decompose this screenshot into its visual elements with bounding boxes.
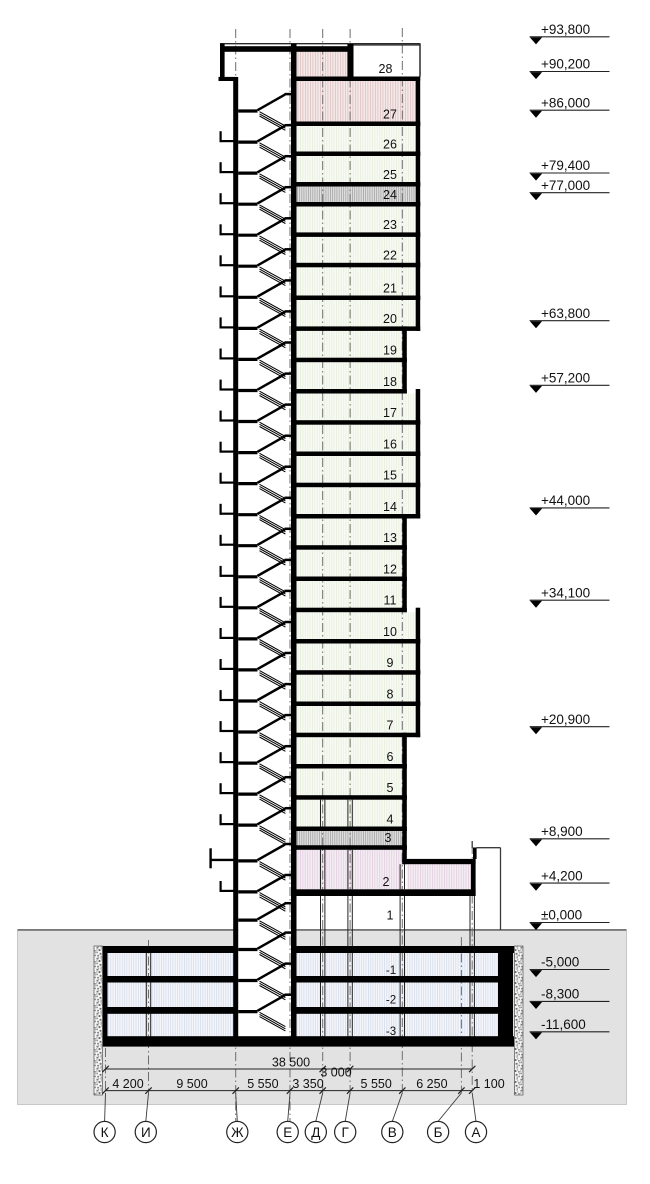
svg-text:6: 6 bbox=[387, 750, 394, 764]
svg-text:-3: -3 bbox=[386, 1026, 396, 1038]
svg-text:21: 21 bbox=[383, 281, 397, 295]
svg-text:10: 10 bbox=[383, 625, 397, 639]
svg-text:12: 12 bbox=[383, 562, 397, 576]
svg-text:9 500: 9 500 bbox=[176, 1077, 207, 1091]
svg-text:38 500: 38 500 bbox=[272, 1056, 310, 1070]
svg-text:2: 2 bbox=[383, 875, 390, 889]
svg-text:4 200: 4 200 bbox=[112, 1077, 143, 1091]
svg-text:7: 7 bbox=[387, 719, 394, 733]
svg-text:5: 5 bbox=[387, 781, 394, 795]
svg-text:26: 26 bbox=[383, 137, 397, 151]
svg-text:А: А bbox=[471, 1125, 480, 1140]
svg-text:Е: Е bbox=[283, 1125, 292, 1140]
svg-text:+90,200: +90,200 bbox=[541, 57, 590, 72]
svg-text:+44,000: +44,000 bbox=[541, 493, 590, 508]
svg-text:+77,000: +77,000 bbox=[541, 178, 590, 193]
svg-text:Б: Б bbox=[434, 1125, 443, 1140]
svg-text:9: 9 bbox=[387, 656, 394, 670]
svg-text:8: 8 bbox=[387, 687, 394, 701]
svg-text:К: К bbox=[101, 1125, 109, 1140]
svg-text:+63,800: +63,800 bbox=[541, 306, 590, 321]
svg-text:-1: -1 bbox=[386, 965, 396, 977]
svg-text:+34,100: +34,100 bbox=[541, 585, 590, 600]
svg-text:14: 14 bbox=[383, 500, 397, 514]
svg-text:18: 18 bbox=[383, 375, 397, 389]
svg-text:+57,200: +57,200 bbox=[541, 371, 590, 386]
svg-text:25: 25 bbox=[383, 168, 397, 182]
svg-text:3 350: 3 350 bbox=[292, 1077, 323, 1091]
svg-text:-5,000: -5,000 bbox=[541, 955, 579, 970]
svg-text:-8,300: -8,300 bbox=[541, 987, 579, 1002]
svg-text:16: 16 bbox=[383, 437, 397, 451]
svg-text:Ж: Ж bbox=[231, 1125, 244, 1140]
svg-text:19: 19 bbox=[383, 344, 397, 358]
svg-text:1: 1 bbox=[387, 909, 394, 923]
svg-text:22: 22 bbox=[383, 249, 397, 263]
svg-text:+86,000: +86,000 bbox=[541, 95, 590, 110]
svg-text:1 100: 1 100 bbox=[473, 1077, 504, 1091]
svg-text:6 250: 6 250 bbox=[416, 1077, 447, 1091]
svg-text:5 550: 5 550 bbox=[361, 1077, 392, 1091]
svg-text:3 000: 3 000 bbox=[320, 1066, 351, 1080]
svg-text:-2: -2 bbox=[386, 995, 396, 1007]
svg-text:Г: Г bbox=[342, 1125, 350, 1140]
svg-text:И: И bbox=[141, 1125, 151, 1140]
svg-text:Д: Д bbox=[311, 1125, 320, 1140]
svg-text:4: 4 bbox=[387, 812, 394, 826]
svg-text:11: 11 bbox=[384, 594, 397, 608]
svg-text:+93,800: +93,800 bbox=[541, 22, 590, 37]
svg-text:-11,600: -11,600 bbox=[541, 1017, 586, 1032]
svg-text:+79,400: +79,400 bbox=[541, 158, 590, 173]
svg-text:В: В bbox=[388, 1125, 397, 1140]
svg-text:24: 24 bbox=[383, 188, 397, 202]
svg-text:27: 27 bbox=[383, 107, 397, 121]
svg-text:15: 15 bbox=[383, 469, 397, 483]
svg-text:17: 17 bbox=[383, 406, 397, 420]
svg-text:23: 23 bbox=[383, 218, 397, 232]
svg-text:13: 13 bbox=[383, 531, 397, 545]
svg-text:+20,900: +20,900 bbox=[541, 712, 590, 727]
svg-text:+4,200: +4,200 bbox=[541, 868, 583, 883]
svg-text:28: 28 bbox=[379, 62, 393, 76]
svg-text:+8,900: +8,900 bbox=[541, 824, 583, 839]
svg-text:20: 20 bbox=[383, 312, 397, 326]
svg-text:5 550: 5 550 bbox=[247, 1077, 278, 1091]
svg-text:±0,000: ±0,000 bbox=[541, 908, 582, 923]
svg-text:3: 3 bbox=[385, 831, 392, 845]
